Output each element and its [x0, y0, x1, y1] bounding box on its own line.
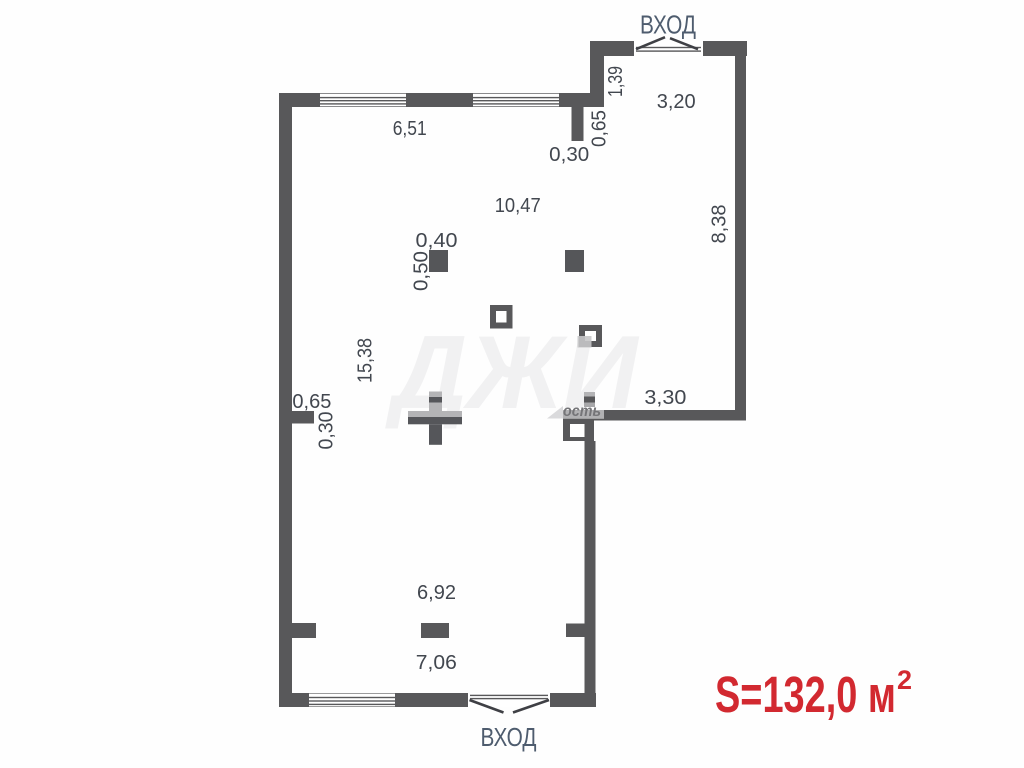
- svg-text:ВХОД: ВХОД: [640, 10, 696, 40]
- svg-text:8,38: 8,38: [709, 205, 731, 244]
- svg-text:0,65: 0,65: [589, 110, 611, 147]
- svg-text:S=132,0 м: S=132,0 м: [715, 666, 896, 723]
- svg-text:10,47: 10,47: [495, 195, 541, 217]
- svg-text:3,20: 3,20: [657, 91, 696, 113]
- svg-text:0,40: 0,40: [416, 230, 458, 252]
- svg-text:6,92: 6,92: [417, 582, 456, 604]
- svg-text:2: 2: [897, 665, 912, 695]
- svg-text:ость: ость: [563, 403, 601, 420]
- svg-text:0,30: 0,30: [316, 412, 338, 450]
- svg-text:7,06: 7,06: [416, 652, 457, 674]
- svg-text:0,65: 0,65: [292, 391, 331, 413]
- svg-text:1,39: 1,39: [605, 66, 627, 97]
- svg-text:15,38: 15,38: [355, 338, 377, 383]
- svg-text:ВХОД: ВХОД: [481, 722, 537, 752]
- svg-text:6,51: 6,51: [393, 118, 427, 140]
- svg-text:0,30: 0,30: [549, 144, 589, 166]
- svg-text:3,30: 3,30: [644, 387, 686, 409]
- svg-text:0,50: 0,50: [411, 251, 433, 291]
